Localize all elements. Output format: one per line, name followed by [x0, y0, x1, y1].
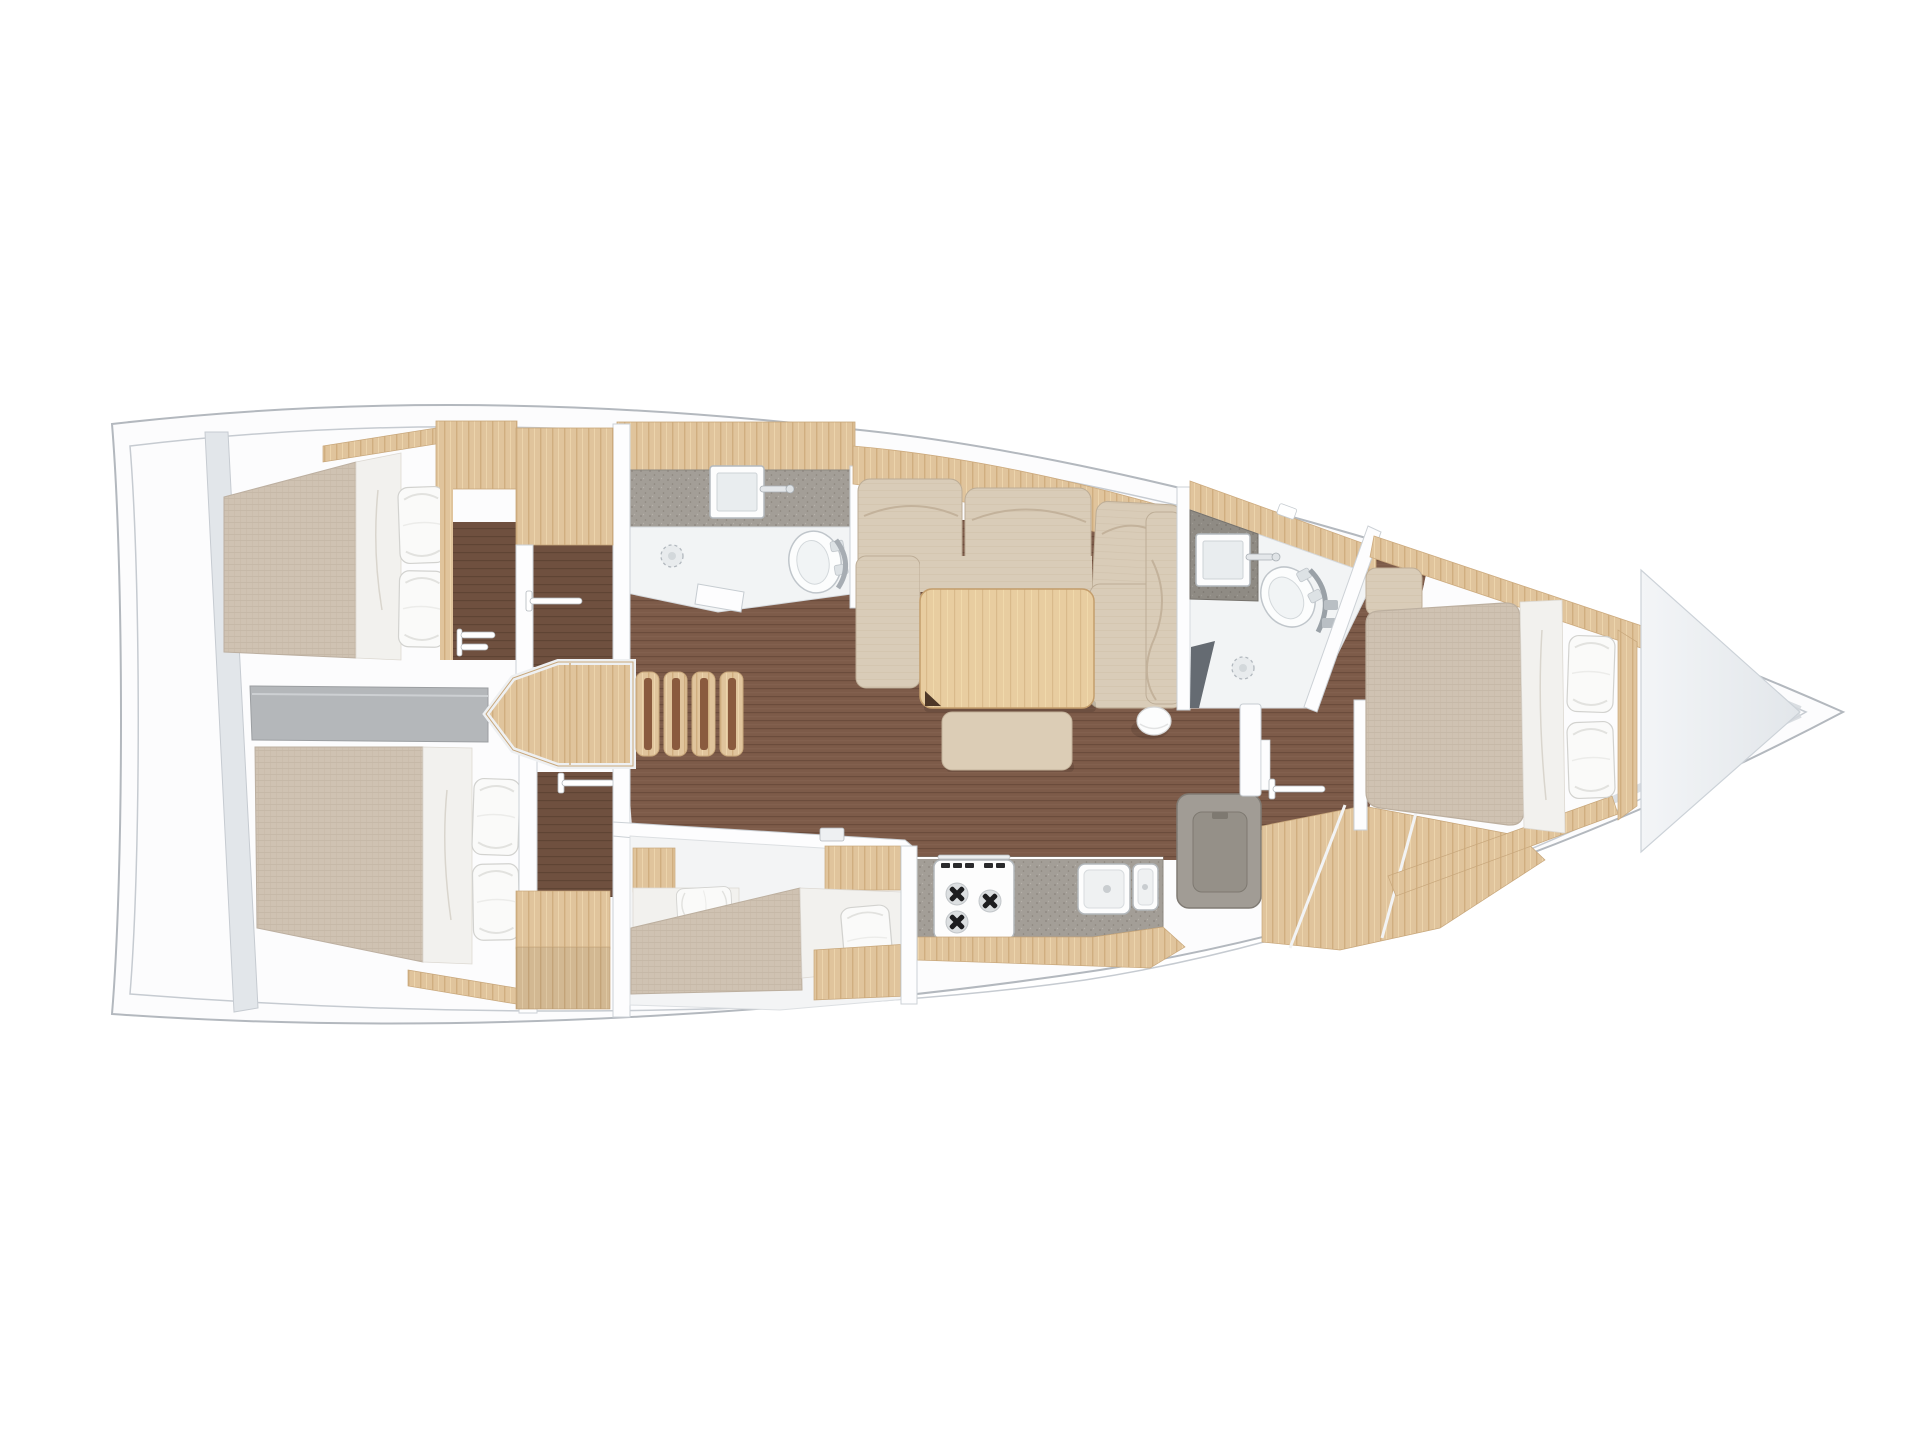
salon-bench — [942, 712, 1072, 770]
faucet-icon — [1103, 885, 1111, 893]
faucet-icon — [1142, 884, 1148, 890]
stbd-seat-upper — [516, 891, 610, 949]
port-berth-mattress — [224, 462, 356, 658]
fwd-head-drain — [1232, 657, 1254, 679]
fridge — [1177, 794, 1261, 908]
aft-head-cabinet — [617, 422, 855, 472]
stove-top — [934, 860, 1014, 939]
pipe-box — [1324, 600, 1338, 610]
stbd-seat-shade — [516, 947, 610, 1009]
mid-cabin-latch-icon — [820, 828, 844, 841]
stbd-berth-mattress — [255, 747, 423, 962]
mid-foot-trim — [814, 944, 908, 1000]
port-berth-sheet — [356, 453, 401, 660]
burner-icon — [946, 883, 968, 905]
burner-icon — [946, 911, 968, 933]
fwd-headboard-trim — [1618, 630, 1637, 820]
aft-head-wall-left — [613, 424, 630, 670]
aft-head-drain — [661, 545, 683, 567]
bow-v-locker — [1641, 570, 1800, 852]
head-side-cabinet — [516, 428, 613, 545]
fridge-lid-notch — [1212, 812, 1228, 819]
fwd-pillow-2 — [1567, 721, 1616, 799]
stbd-berth-sheet — [423, 747, 472, 964]
yacht-floorplan — [0, 0, 1920, 1440]
fridge-lid — [1193, 812, 1247, 892]
floor-aft-cabin-port — [453, 522, 516, 660]
fwd-head-bulkhead — [1177, 487, 1190, 710]
mid-cabinet-left — [633, 848, 675, 892]
port-pillow-1 — [398, 486, 447, 564]
sofa-chaise — [856, 556, 920, 688]
stbd-pillow-2 — [472, 864, 519, 941]
stbd-fwd-wall — [613, 757, 630, 1017]
stbd-pillow-1 — [472, 778, 521, 856]
mid-cabin-aft-wall — [901, 846, 917, 1004]
stove-rail — [938, 855, 1010, 859]
port-pillow-2 — [398, 571, 445, 648]
fwd-berth-sheet — [1520, 600, 1565, 833]
galley-sink — [1078, 864, 1158, 914]
fwd-head-door — [1240, 704, 1261, 796]
sofa-seat-middle — [920, 556, 1092, 592]
floor-aft-cabin-starboard — [537, 772, 613, 897]
burner-icon — [979, 890, 1001, 912]
salon-table — [920, 589, 1094, 708]
companionway — [486, 662, 743, 766]
fwd-berth-mattress — [1366, 603, 1524, 825]
floor-closet-port — [533, 545, 613, 667]
fwd-pillow-1 — [1567, 635, 1616, 713]
pouf — [1137, 707, 1171, 735]
port-berth-trim — [440, 478, 453, 660]
mid-cabinet-right — [825, 846, 903, 890]
fwd-berth-foot-wall — [1354, 700, 1367, 830]
stove — [934, 855, 1014, 939]
mid-cabin — [613, 822, 917, 1010]
